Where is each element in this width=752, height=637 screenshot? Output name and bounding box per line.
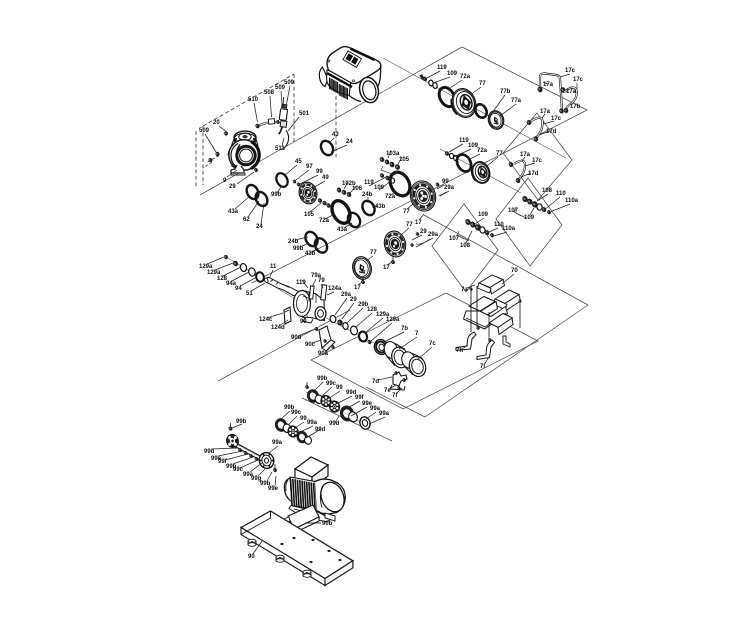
svg-text:29: 29 [420,229,427,235]
svg-text:509: 509 [284,80,295,86]
svg-text:29: 29 [350,297,357,303]
svg-text:109: 109 [524,215,535,221]
svg-text:17a: 17a [540,109,551,115]
svg-text:43a: 43a [228,209,239,215]
svg-text:109: 109 [478,212,489,218]
svg-text:99e: 99e [268,486,279,492]
svg-text:11: 11 [270,264,277,270]
svg-text:90a: 90a [318,351,329,357]
svg-text:20: 20 [213,120,220,126]
svg-text:99d: 99d [315,427,326,433]
svg-text:72a: 72a [460,74,471,80]
svg-text:17: 17 [383,265,390,271]
svg-text:99a: 99a [307,420,318,426]
svg-text:90d: 90d [291,335,302,341]
svg-text:17: 17 [354,285,361,291]
svg-text:72a: 72a [319,218,330,224]
svg-text:509: 509 [199,128,210,134]
svg-text:90b: 90b [322,521,333,527]
svg-text:77a: 77a [511,98,522,104]
svg-text:99a: 99a [272,440,283,446]
svg-text:17b: 17b [570,104,581,110]
svg-text:17d: 17d [528,171,539,177]
svg-text:108: 108 [542,188,553,194]
svg-text:107: 107 [449,236,460,242]
svg-text:24: 24 [346,139,353,145]
svg-text:43b: 43b [305,251,316,257]
svg-text:105: 105 [304,212,315,218]
svg-text:129a: 129a [386,317,400,323]
svg-text:511: 511 [275,146,285,152]
svg-text:103a: 103a [386,151,400,157]
svg-text:43a: 43a [337,227,348,233]
svg-text:109: 109 [447,71,458,77]
svg-text:99: 99 [300,319,307,325]
svg-text:43b: 43b [375,204,386,210]
svg-text:77: 77 [403,209,410,215]
svg-text:17: 17 [415,220,422,226]
svg-text:119: 119 [437,65,447,71]
svg-text:124d: 124d [271,325,285,331]
svg-text:99a: 99a [379,411,390,417]
svg-text:29a: 29a [428,232,439,238]
svg-text:24b: 24b [362,192,373,198]
svg-text:77: 77 [370,250,377,256]
svg-text:90c: 90c [305,342,316,348]
svg-text:110: 110 [556,191,566,197]
svg-text:99d: 99d [204,449,215,455]
svg-text:119: 119 [364,180,374,186]
svg-text:90: 90 [248,554,255,560]
svg-text:501: 501 [299,111,310,117]
svg-text:24: 24 [256,224,263,230]
svg-text:94: 94 [235,286,242,292]
svg-text:77: 77 [496,151,503,157]
svg-text:17c: 17c [573,77,584,83]
svg-text:99b: 99b [293,246,304,252]
svg-text:110a: 110a [502,226,516,232]
svg-text:45: 45 [295,159,302,165]
svg-text:29a: 29a [444,185,455,191]
svg-text:107: 107 [508,208,519,214]
svg-text:7c: 7c [429,341,436,347]
svg-text:77: 77 [479,81,486,87]
svg-text:108: 108 [460,243,471,249]
svg-text:17c: 17c [565,68,576,74]
svg-text:49: 49 [322,175,329,181]
svg-text:79: 79 [318,278,325,284]
svg-text:29: 29 [229,184,236,190]
svg-text:17a: 17a [566,89,577,95]
svg-text:62: 62 [243,217,250,223]
svg-text:7e: 7e [384,388,391,394]
svg-text:51: 51 [246,291,253,297]
svg-text:124a: 124a [328,286,342,292]
svg-text:72a: 72a [477,148,488,154]
svg-text:17a: 17a [520,152,531,158]
svg-text:77: 77 [406,222,413,228]
svg-text:43: 43 [332,132,339,138]
svg-text:110a: 110a [565,198,579,204]
svg-text:510: 510 [248,97,259,103]
svg-text:119: 119 [296,280,306,286]
svg-text:7b: 7b [401,326,408,332]
svg-text:99: 99 [336,385,343,391]
svg-text:508: 508 [264,90,275,96]
svg-text:77b: 77b [500,89,511,95]
svg-text:72a: 72a [385,194,396,200]
svg-text:124c: 124c [259,317,273,323]
svg-text:7i: 7i [480,364,485,370]
svg-text:70: 70 [511,268,518,274]
svg-text:99b: 99b [271,192,282,198]
svg-text:99d: 99d [329,421,340,427]
svg-text:97: 97 [306,164,313,170]
